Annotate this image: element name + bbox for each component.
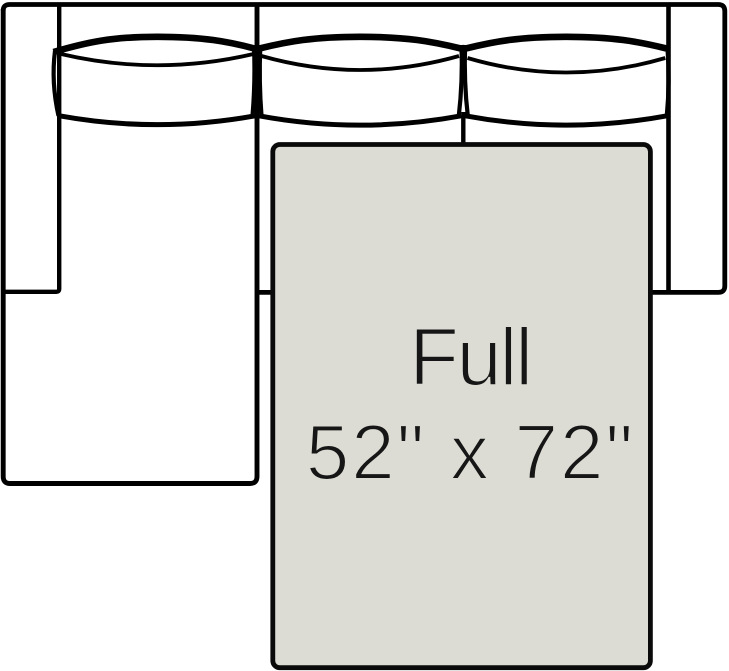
svg-text:52" x 72": 52" x 72" xyxy=(306,408,635,496)
svg-text:Full: Full xyxy=(409,312,531,403)
